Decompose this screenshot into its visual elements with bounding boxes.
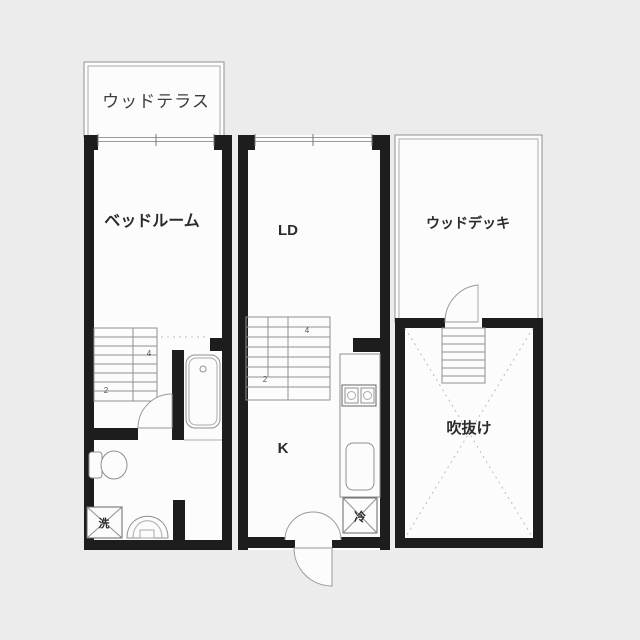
kitchen-sink <box>346 443 374 490</box>
wall-top-left-corner <box>84 135 98 150</box>
stair-number: 4 <box>305 326 310 335</box>
ld-window <box>255 134 372 146</box>
terrace-label: ウッドテラス <box>102 92 210 111</box>
wall-left <box>84 135 94 550</box>
toilet <box>89 451 127 479</box>
hall-south-wall <box>84 428 138 440</box>
wall-left <box>395 318 405 548</box>
stair-number: 4 <box>147 349 152 358</box>
wall-bottom <box>395 538 543 548</box>
deck-label: ウッドデッキ <box>426 215 510 231</box>
bedroom-window <box>98 134 214 146</box>
middle-unit: 4 2 冷 LD K <box>238 134 390 586</box>
void-stairs <box>442 328 485 383</box>
void-label: 吹抜け <box>446 419 491 437</box>
fridge-box: 冷 <box>343 498 377 533</box>
washer-label: 洗 <box>99 516 110 530</box>
wall-notch <box>210 338 232 351</box>
stair-number: 2 <box>104 386 109 395</box>
left-unit: 4 2 洗 ウッド <box>84 62 232 550</box>
stove <box>342 385 376 406</box>
wall-top-right-seg <box>482 318 543 328</box>
wall-bottom <box>84 540 232 550</box>
ld-label: LD <box>278 222 298 239</box>
wall-top-left-corner <box>238 135 255 150</box>
wall-jog <box>353 338 390 352</box>
stair-number: 2 <box>263 375 268 384</box>
washroom-stub-wall <box>173 500 185 540</box>
washer-box: 洗 <box>87 507 122 538</box>
wall-top-right-corner <box>372 135 390 150</box>
kitchen-label: K <box>278 440 289 457</box>
left-unit-floor <box>84 135 232 550</box>
floorplan-svg: 4 2 洗 ウッド <box>0 0 640 640</box>
wall-top-right-corner <box>214 135 232 150</box>
bedroom-label: ベッドルーム <box>104 213 200 230</box>
wall-top-left-seg <box>395 318 445 328</box>
wall-right <box>533 318 543 548</box>
fridge-label: 冷 <box>354 509 366 524</box>
bathroom-left-wall <box>172 350 184 440</box>
right-section: ウッドデッキ 吹抜け <box>395 135 543 548</box>
